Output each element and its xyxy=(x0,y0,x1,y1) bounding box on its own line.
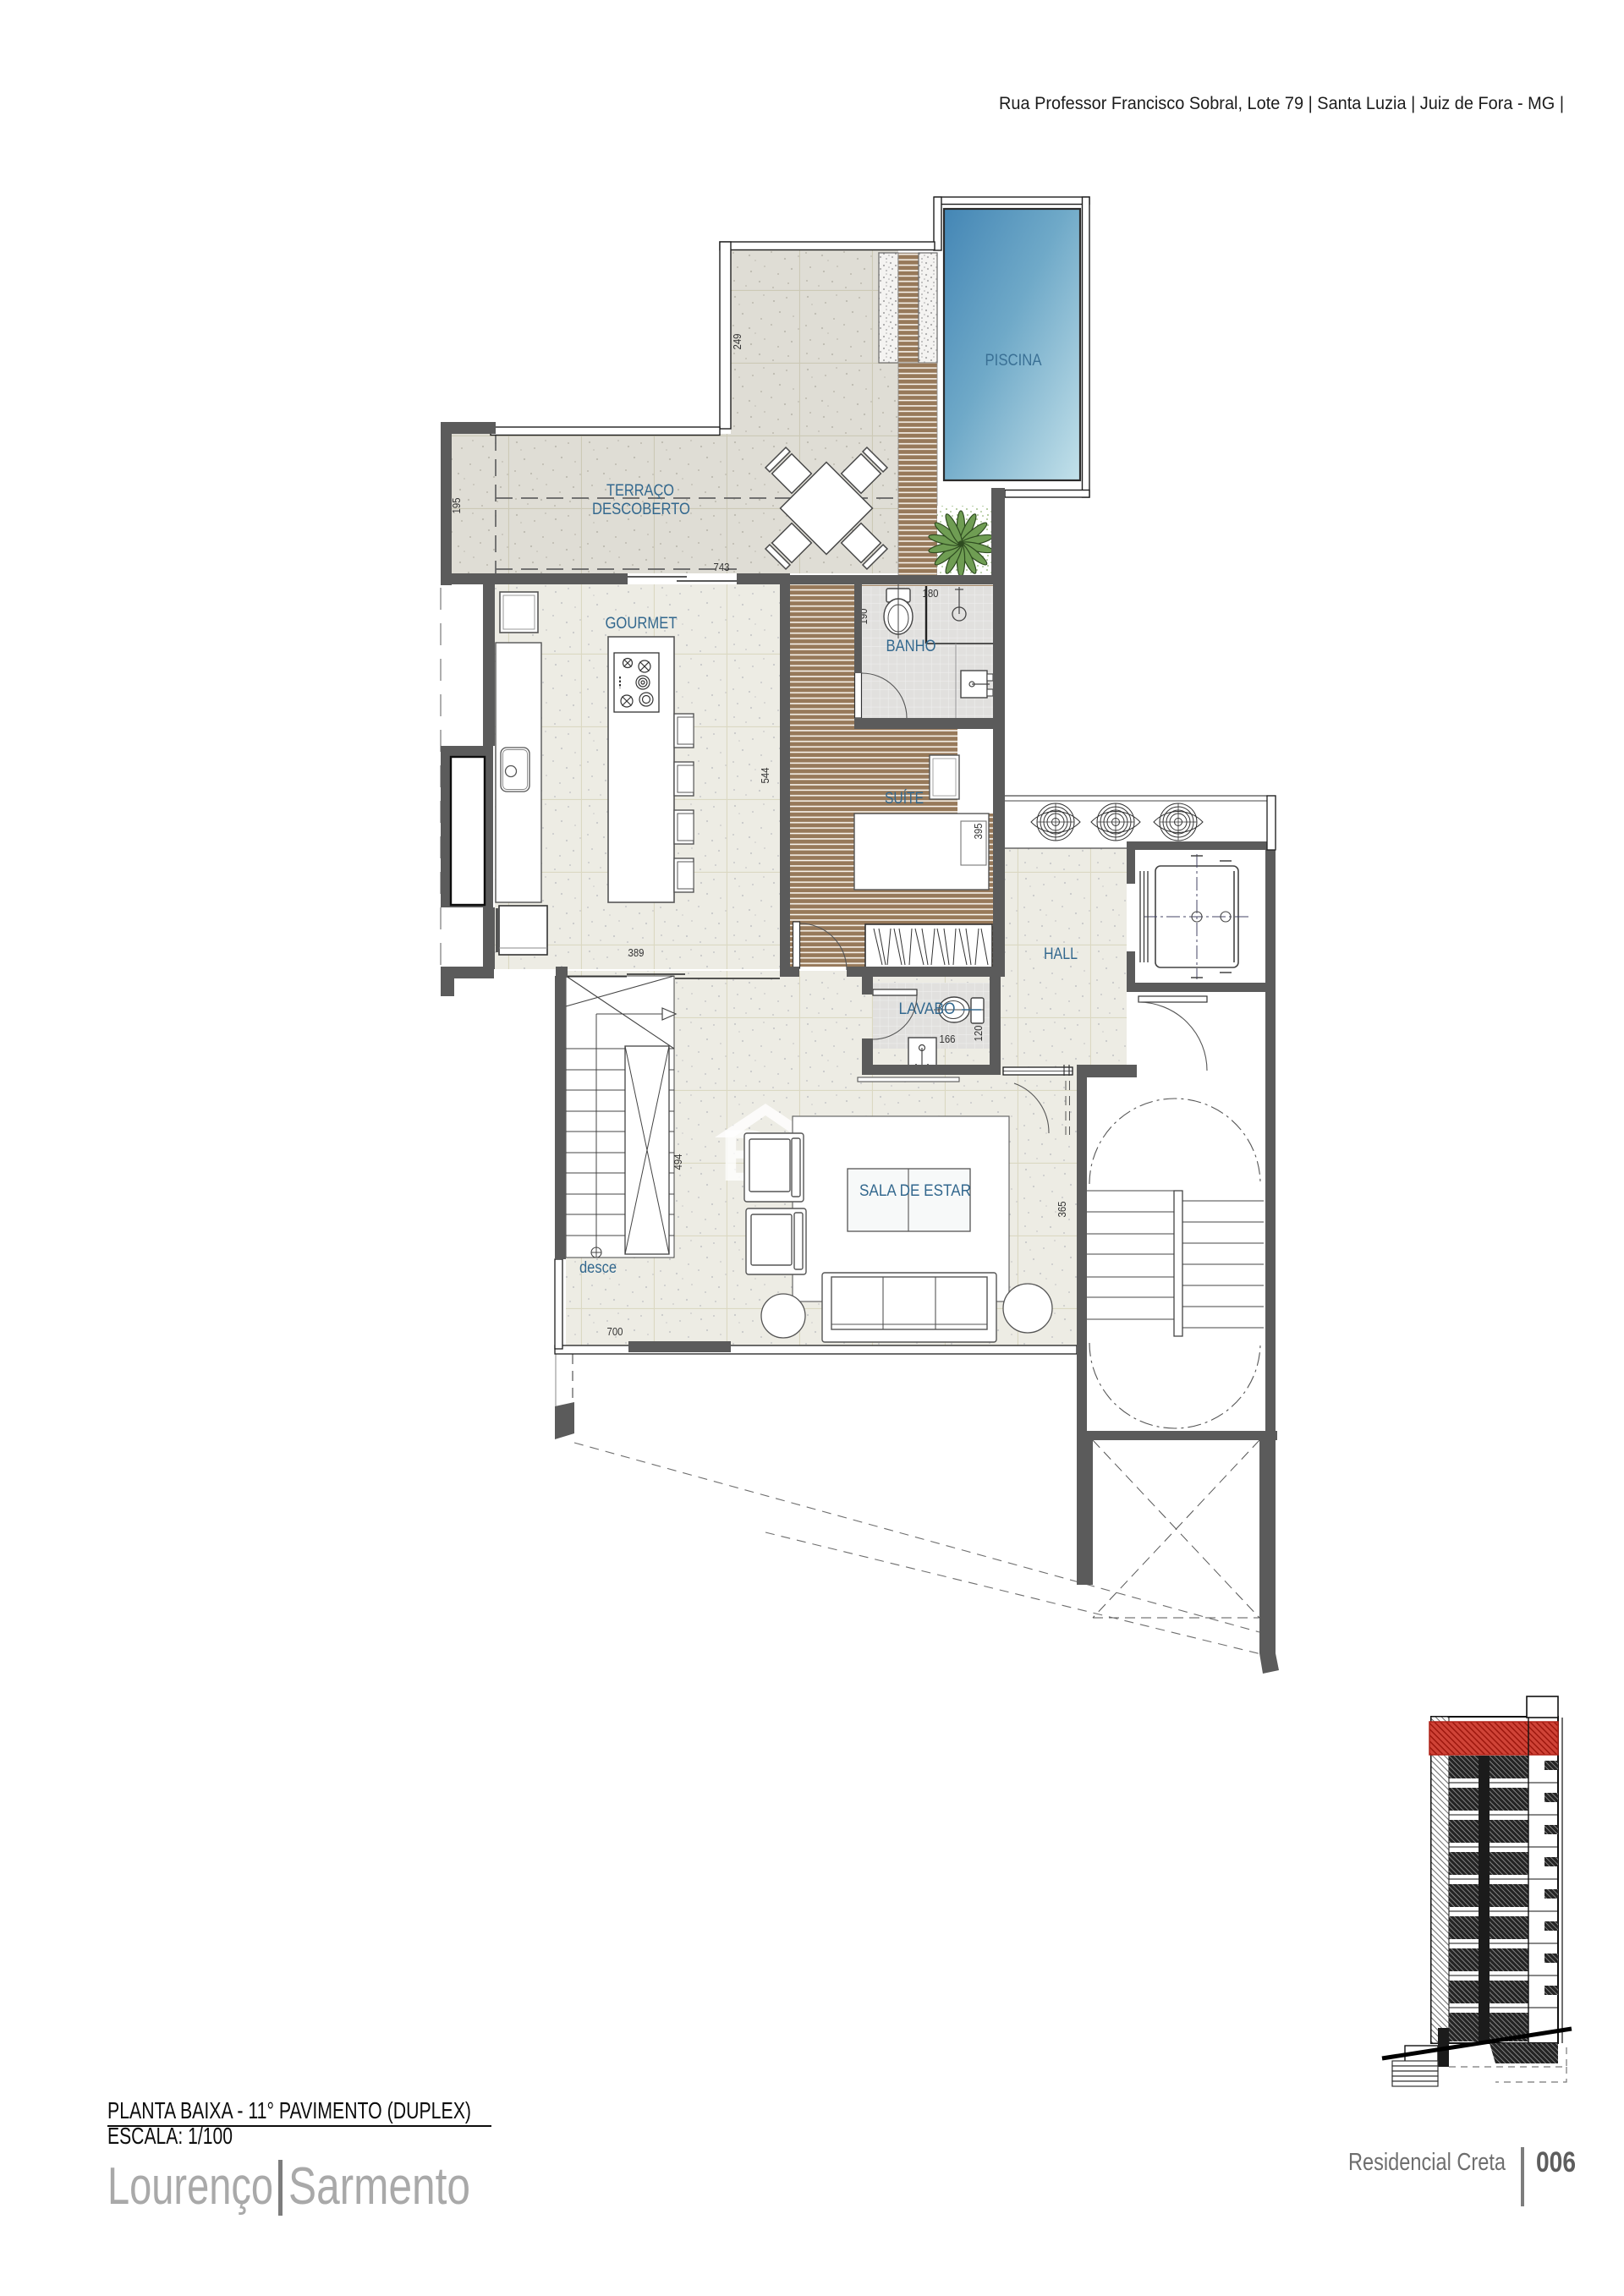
svg-text:PLANTA BAIXA - 11° PAVIMENTO (: PLANTA BAIXA - 11° PAVIMENTO (DUPLEX) xyxy=(107,2097,471,2123)
svg-text:Rua Professor Francisco Sobral: Rua Professor Francisco Sobral, Lote 79 … xyxy=(999,94,1564,113)
svg-text:SUÍTE: SUÍTE xyxy=(885,790,924,808)
svg-text:743: 743 xyxy=(714,561,730,573)
svg-text:DESCOBERTO: DESCOBERTO xyxy=(592,501,690,518)
svg-text:Lourenço: Lourenço xyxy=(107,2157,273,2216)
svg-text:389: 389 xyxy=(628,946,645,959)
svg-text:180: 180 xyxy=(923,587,939,600)
svg-text:365: 365 xyxy=(1056,1202,1068,1218)
svg-text:PISCINA: PISCINA xyxy=(985,352,1042,370)
svg-text:GOURMET: GOURMET xyxy=(606,615,678,633)
svg-text:494: 494 xyxy=(672,1154,684,1170)
svg-text:Residencial Creta: Residencial Creta xyxy=(1348,2149,1506,2176)
svg-text:544: 544 xyxy=(759,768,771,784)
svg-text:desce: desce xyxy=(579,1259,617,1277)
svg-text:HALL: HALL xyxy=(1044,945,1078,963)
svg-text:006: 006 xyxy=(1536,2146,1576,2178)
svg-text:195: 195 xyxy=(450,498,463,514)
svg-text:700: 700 xyxy=(607,1325,623,1338)
svg-text:120: 120 xyxy=(972,1026,985,1042)
svg-text:166: 166 xyxy=(940,1033,956,1045)
svg-text:LAVABO: LAVABO xyxy=(899,1000,956,1018)
svg-text:TERRAÇO: TERRAÇO xyxy=(606,482,674,500)
svg-text:249: 249 xyxy=(731,334,743,350)
svg-text:Sarmento: Sarmento xyxy=(288,2157,470,2216)
svg-text:SALA DE ESTAR: SALA DE ESTAR xyxy=(859,1182,971,1200)
svg-text:ESCALA: 1/100: ESCALA: 1/100 xyxy=(107,2123,233,2149)
svg-text:395: 395 xyxy=(972,824,985,840)
svg-text:BANHO: BANHO xyxy=(886,638,936,655)
